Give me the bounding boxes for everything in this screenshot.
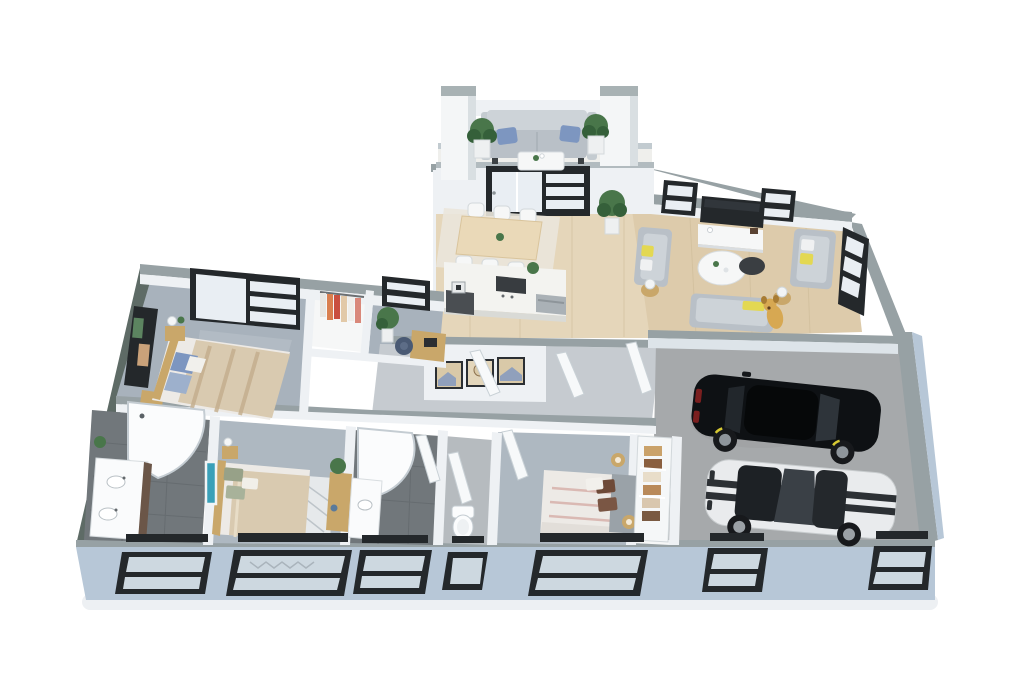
waste-bin (331, 505, 338, 512)
sink-3 (358, 500, 372, 510)
dog-snout (767, 306, 770, 309)
headlight-2 (707, 500, 713, 510)
laptop (424, 338, 437, 347)
desk-plant (330, 458, 346, 474)
porch-coffee-table (518, 152, 564, 170)
dog-ear-right (773, 295, 779, 303)
front-window-5 (528, 550, 648, 596)
table-centerpiece (496, 233, 504, 241)
headlight-1 (709, 470, 715, 480)
bedroom2-bed (212, 460, 310, 540)
white-pillow (242, 477, 259, 489)
living-window-1 (661, 180, 698, 216)
sliding-door-glass (196, 274, 246, 323)
yellow-pillow (641, 245, 654, 257)
sink-1 (107, 476, 125, 488)
vanity-2 (348, 478, 382, 540)
office-window (382, 276, 430, 311)
dishwasher (536, 294, 566, 315)
yellow-throw (742, 301, 765, 312)
toilet (452, 506, 474, 539)
front-window-3 (353, 550, 432, 594)
front-window-7 (868, 546, 932, 590)
sportscar-roof (812, 469, 849, 530)
teal-wall-art (206, 462, 216, 504)
suv-mirror (742, 371, 751, 377)
dark-side-table (739, 257, 765, 275)
front-window-1 (115, 552, 212, 594)
dining-table (456, 216, 542, 260)
hood-scoop (734, 465, 783, 523)
living-right-window (838, 227, 869, 316)
floorplan-render (0, 0, 1024, 683)
sink-2 (99, 508, 117, 520)
kitchen-island (444, 262, 566, 322)
front-window-2 (226, 550, 352, 596)
console-decor (750, 228, 758, 234)
dog-ear-left (761, 296, 767, 304)
pendant-lamp-1 (611, 453, 625, 467)
brown-pillow-2 (597, 497, 617, 512)
master-nightstand (165, 317, 185, 342)
front-window-4 (442, 552, 488, 590)
floorplan-svg (0, 0, 1024, 683)
cooktop (496, 276, 526, 294)
nightstand-lamp (168, 317, 177, 326)
master-vanity (90, 458, 152, 542)
suv-roof (743, 384, 820, 441)
bedroom3-bed (540, 470, 640, 542)
white-pillow-2 (585, 477, 603, 491)
blue-pillow-left (496, 127, 518, 146)
pendant-lamp-2 (622, 515, 636, 529)
blue-pillow-right (559, 125, 581, 143)
door-handle (492, 191, 496, 195)
island-herb-plant (527, 262, 539, 274)
sofa-right (790, 228, 837, 289)
gallery-frame-3 (498, 358, 524, 384)
bedroom3-wardrobe (634, 436, 672, 542)
yellow-pillow-2 (800, 253, 814, 265)
green-pillow-1 (223, 467, 243, 482)
front-window-6 (702, 548, 768, 592)
round-coffee-table (698, 251, 746, 285)
master-sliding-door (190, 268, 300, 330)
sofa-left (634, 227, 673, 288)
shower-head (140, 414, 145, 419)
bath-plant (94, 436, 106, 448)
